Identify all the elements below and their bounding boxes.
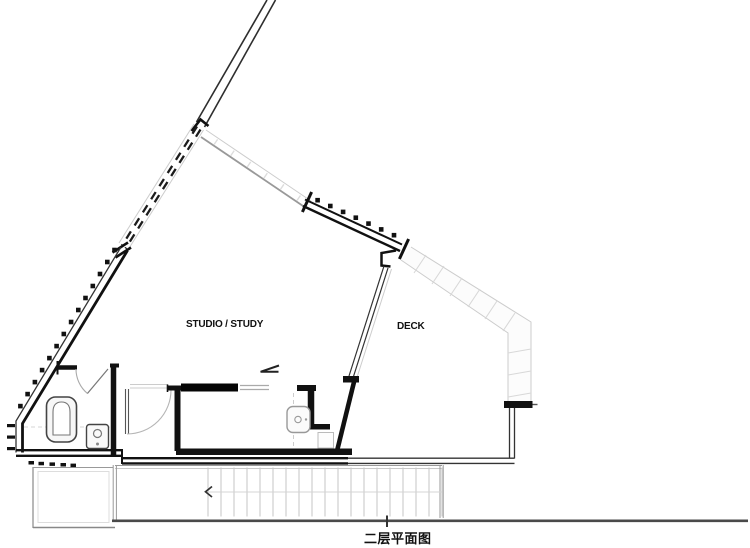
stairs — [206, 468, 443, 517]
sink-icon — [87, 425, 109, 449]
counter-bar — [181, 384, 238, 392]
overhead-dashed-wall — [119, 124, 204, 249]
roof-eave-line — [197, 0, 276, 127]
shelf-box — [318, 433, 334, 449]
floor-plan-drawing — [0, 0, 750, 548]
north-glazing-band — [201, 130, 311, 208]
studio-arrow — [261, 366, 280, 372]
clerestory-louver-wall — [302, 192, 408, 267]
studio-east-glazing — [349, 266, 392, 379]
deck-east-wall — [504, 401, 538, 459]
label-deck: DECK — [397, 321, 425, 332]
studio-east-wall — [338, 376, 360, 449]
stair-room — [168, 384, 353, 452]
hall-door-arc — [127, 390, 171, 434]
bathroom — [24, 361, 119, 456]
toilet-icon — [47, 397, 77, 442]
garage-outline — [33, 467, 115, 528]
bathroom-door-leaf — [87, 369, 108, 394]
south-louver-dots — [29, 461, 77, 467]
floor-plan-sheet: STUDIO / STUDY DECK 二层平面图 — [0, 0, 750, 548]
hall-door-leaf — [126, 389, 129, 434]
lower-level-outline — [29, 461, 749, 528]
washbasin-icon — [287, 407, 310, 433]
hall-door — [126, 385, 172, 435]
drawing-caption: 二层平面图 — [364, 528, 432, 547]
label-studio: STUDIO / STUDY — [186, 319, 263, 330]
bathroom-door-arc — [76, 369, 87, 394]
